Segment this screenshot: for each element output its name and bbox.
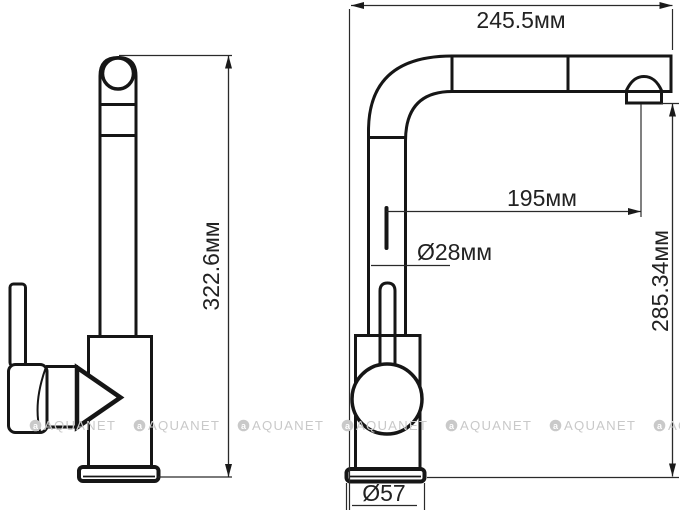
technical-drawing-page: 322.6мм 245.5мм 195мм — [0, 0, 680, 512]
dimension-spout-reach: 195мм — [387, 104, 642, 248]
watermark-text: AQUANET — [148, 418, 220, 433]
arrow-left-icon — [351, 2, 364, 9]
side-view-riser-column — [100, 58, 136, 337]
dimension-base-diameter: Ø57 — [347, 480, 425, 510]
side-view-handle-base — [9, 365, 48, 433]
watermark: a AQUANET — [550, 418, 636, 433]
watermark-text: AQUANET — [252, 418, 324, 433]
side-view-lever-handle — [10, 284, 26, 366]
front-view-aerator-nozzle — [627, 92, 662, 104]
watermark: a AQUANET — [446, 418, 532, 433]
watermark-text: AQUANET — [356, 418, 428, 433]
watermark-text: AQUANET — [460, 418, 532, 433]
faucet-dimension-drawing: 322.6мм 245.5мм 195мм — [0, 0, 680, 512]
base-diameter-label: Ø57 — [362, 480, 405, 506]
arrow-down-icon — [225, 464, 232, 477]
spout-reach-label: 195мм — [507, 185, 577, 211]
spout-diameter-label: Ø28мм — [417, 239, 492, 265]
arrow-right-icon — [660, 2, 673, 9]
overall-height-label: 322.6мм — [198, 221, 224, 310]
overall-width-label: 245.5мм — [476, 7, 565, 33]
watermark-text: AQUANET — [44, 418, 116, 433]
watermark: a AQUANET — [654, 418, 680, 433]
arrow-down-icon — [669, 464, 676, 477]
watermark: a AQUANET — [238, 418, 324, 433]
outlet-height-label: 285.34мм — [647, 230, 673, 332]
side-view-spray-head-circle — [103, 58, 134, 89]
side-view-base-flange — [79, 467, 159, 481]
arrow-up-icon — [669, 104, 676, 117]
watermark-text: AQUANET — [564, 418, 636, 433]
arrow-right-icon — [628, 208, 641, 215]
watermark-text: AQUANET — [668, 418, 680, 433]
arrow-up-icon — [225, 56, 232, 69]
